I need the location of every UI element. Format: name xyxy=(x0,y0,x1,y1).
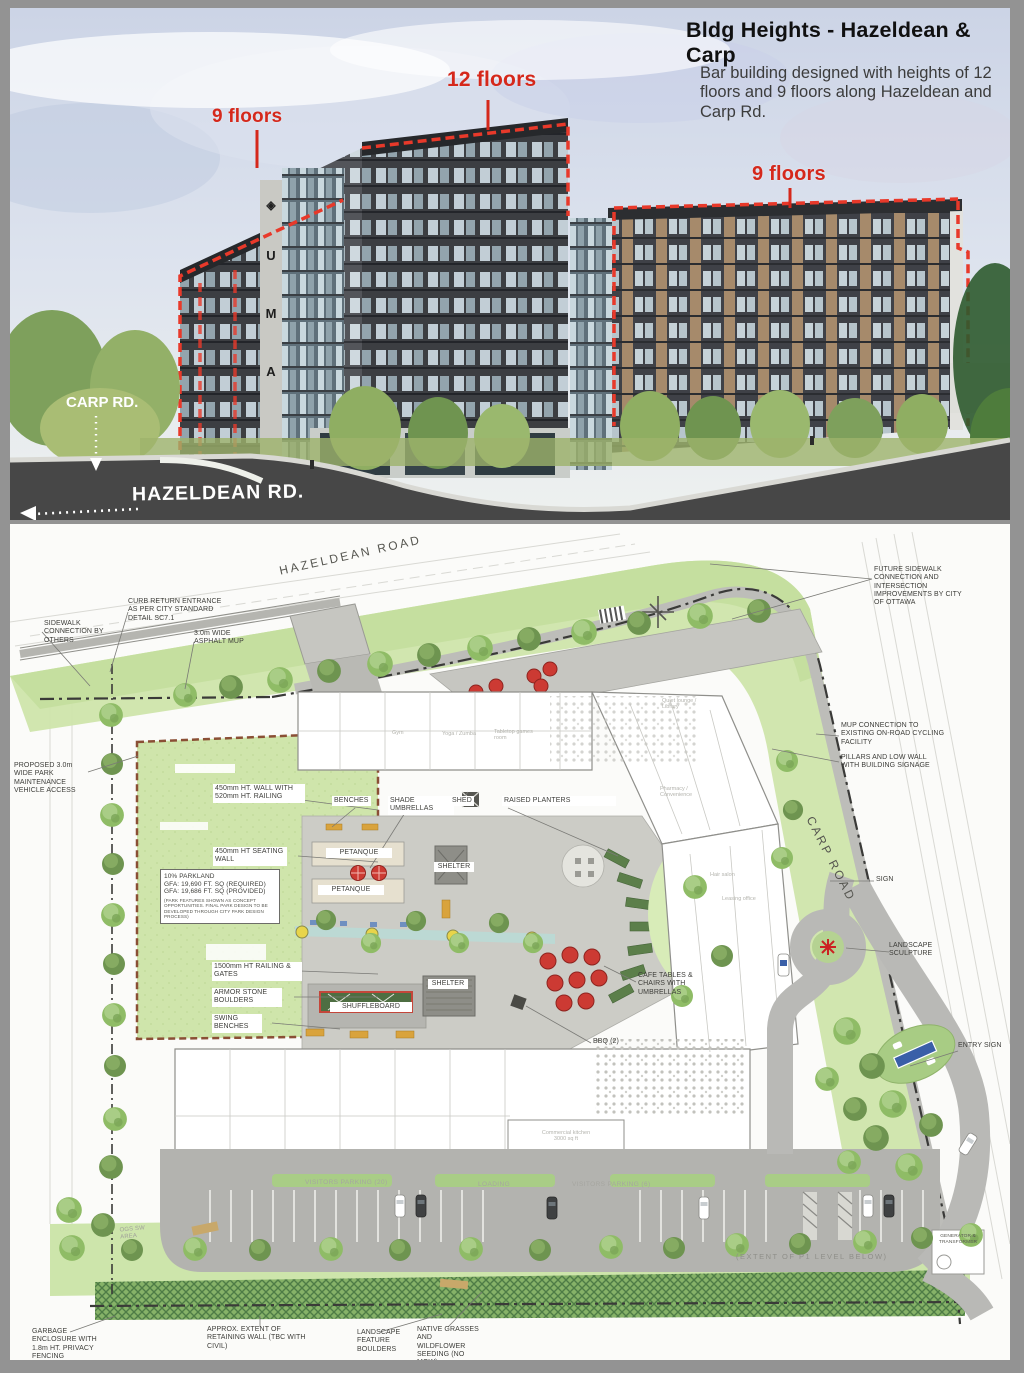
ann-p1-extent: (EXTENT OF P1 LEVEL BELOW) xyxy=(736,1253,888,1262)
room-gym: Gym xyxy=(392,730,404,736)
dining-tables xyxy=(595,1039,747,1117)
ann-shed: SHED xyxy=(450,796,474,806)
ann-pillars-wall: PILLARS AND LOW WALL WITH BUILDING SIGNA… xyxy=(841,754,941,771)
rendering-panel: Bldg Heights - Hazeldean & Carp Bar buil… xyxy=(10,8,1010,520)
ann-petanque-2: PETANQUE xyxy=(318,885,384,895)
room-hair-salon: Hair salon xyxy=(710,872,744,878)
ann-ogs-area: OGS SW AREA xyxy=(119,1225,154,1242)
room-yoga: Yoga / Zumba xyxy=(442,731,486,737)
ann-shelter-1: SHELTER xyxy=(434,862,474,872)
floors-label-left: 9 floors xyxy=(212,106,282,128)
room-lounge: Quiet lounge / Library xyxy=(662,698,708,711)
floors-label-right: 9 floors xyxy=(752,163,826,186)
room-leasing: Leasing office xyxy=(722,896,756,902)
ann-garbage-enclosure: GARBAGE ENCLOSURE WITH 1.8m HT. PRIVACY … xyxy=(32,1328,104,1360)
ann-swing-benches: SWING BENCHES xyxy=(212,1014,262,1033)
ann-parkland-box: 10% PARKLAND GFA: 19,690 FT. SQ (REQUIRE… xyxy=(160,869,280,924)
uma-logo-icon: ◈ xyxy=(260,198,282,212)
parkland-note: (PARK FEATURES SHOWN AS CONCEPT OPPORTUN… xyxy=(164,898,276,920)
floors-label-center: 12 floors xyxy=(447,68,536,92)
ann-entry-sign: ENTRY SIGN xyxy=(958,1042,1004,1050)
page-subtitle: Bar building designed with heights of 12… xyxy=(700,64,1010,122)
page: { "header": { "title": "Bldg Heights - H… xyxy=(0,0,1024,1373)
site-plan-panel: SIDEWALK CONNECTION BY OTHERS CURB RETUR… xyxy=(10,524,1010,1360)
ann-retaining-wall: APPROX. EXTENT OF RETAINING WALL (TBC WI… xyxy=(207,1326,315,1351)
site-plan-drawing xyxy=(10,524,1010,1360)
label-loading: LOADING xyxy=(478,1181,510,1188)
parkland-line: 10% PARKLAND xyxy=(164,873,276,881)
carp-rd-label: CARP RD. xyxy=(66,394,138,411)
ann-curb-return: CURB RETURN ENTRANCE AS PER CITY STANDAR… xyxy=(128,598,224,623)
uma-sign-strip xyxy=(260,180,282,472)
ann-seating-wall: 450mm HT SEATING WALL xyxy=(213,847,287,866)
ann-sign: SIGN xyxy=(876,876,894,884)
parkland-line: GFA: 19,690 FT. SQ (REQUIRED) xyxy=(164,881,276,889)
ann-feature-boulders: LANDSCAPE FEATURE BOULDERS xyxy=(357,1329,401,1354)
ann-cafe-tables: CAFE TABLES & CHAIRS WITH UMBRELLAS xyxy=(638,972,696,997)
uma-sign-letter: M xyxy=(260,306,282,321)
label-visitors-parking-6: VISITORS PARKING (6) xyxy=(572,1181,651,1188)
ann-generator: GENERATOR & TRANSFORMER xyxy=(935,1234,981,1245)
ann-wall-railing: 450mm HT. WALL WITH 520mm HT. RAILING xyxy=(213,784,305,803)
page-title: Bldg Heights - Hazeldean & Carp xyxy=(686,18,1010,68)
ann-petanque-1: PETANQUE xyxy=(326,848,392,858)
room-kitchen: Commercial kitchen 3000 sq ft xyxy=(538,1130,594,1143)
ann-benches: BENCHES xyxy=(332,796,371,806)
ann-armor-stone: ARMOR STONE BOULDERS xyxy=(212,988,282,1007)
hazeldean-rd-label: HAZELDEAN RD. xyxy=(132,480,305,506)
label-visitors-parking-20: VISITORS PARKING (20) xyxy=(305,1179,388,1186)
ann-landscape-sculpture: LANDSCAPE SCULPTURE xyxy=(889,942,949,959)
ann-future-sidewalk: FUTURE SIDEWALK CONNECTION AND INTERSECT… xyxy=(874,566,970,607)
uma-sign-letter: A xyxy=(260,364,282,379)
ann-bbq: BBQ (2) xyxy=(593,1038,619,1046)
ann-asphalt-mup: 3.0m WIDE ASPHALT MUP xyxy=(194,630,260,647)
ann-mup-connection: MUP CONNECTION TO EXISTING ON-ROAD CYCLI… xyxy=(841,722,945,747)
ann-raised-planters: RAISED PLANTERS xyxy=(502,796,616,806)
ann-shade-umbrellas: SHADE UMBRELLAS xyxy=(388,796,454,815)
room-games: Tabletop games room xyxy=(494,729,542,742)
ann-park-access: PROPOSED 3.0m WIDE PARK MAINTENANCE VEHI… xyxy=(14,762,84,795)
ann-railing-gates: 1500mm HT RAILING & GATES xyxy=(212,962,302,981)
landscape-sculpture-star xyxy=(820,939,836,955)
ann-shuffleboard: SHUFFLEBOARD xyxy=(330,1002,412,1012)
room-pharmacy: Pharmacy / Convenience xyxy=(660,786,704,799)
uma-sign-letter: U xyxy=(260,248,282,263)
ann-native-grasses: NATIVE GRASSES AND WILDFLOWER SEEDING (N… xyxy=(417,1326,481,1360)
ann-shelter-2: SHELTER xyxy=(428,979,468,989)
ann-sidewalk-connection: SIDEWALK CONNECTION BY OTHERS xyxy=(44,620,110,645)
parkland-line: GFA: 19,686 FT. SQ (PROVIDED) xyxy=(164,888,276,896)
